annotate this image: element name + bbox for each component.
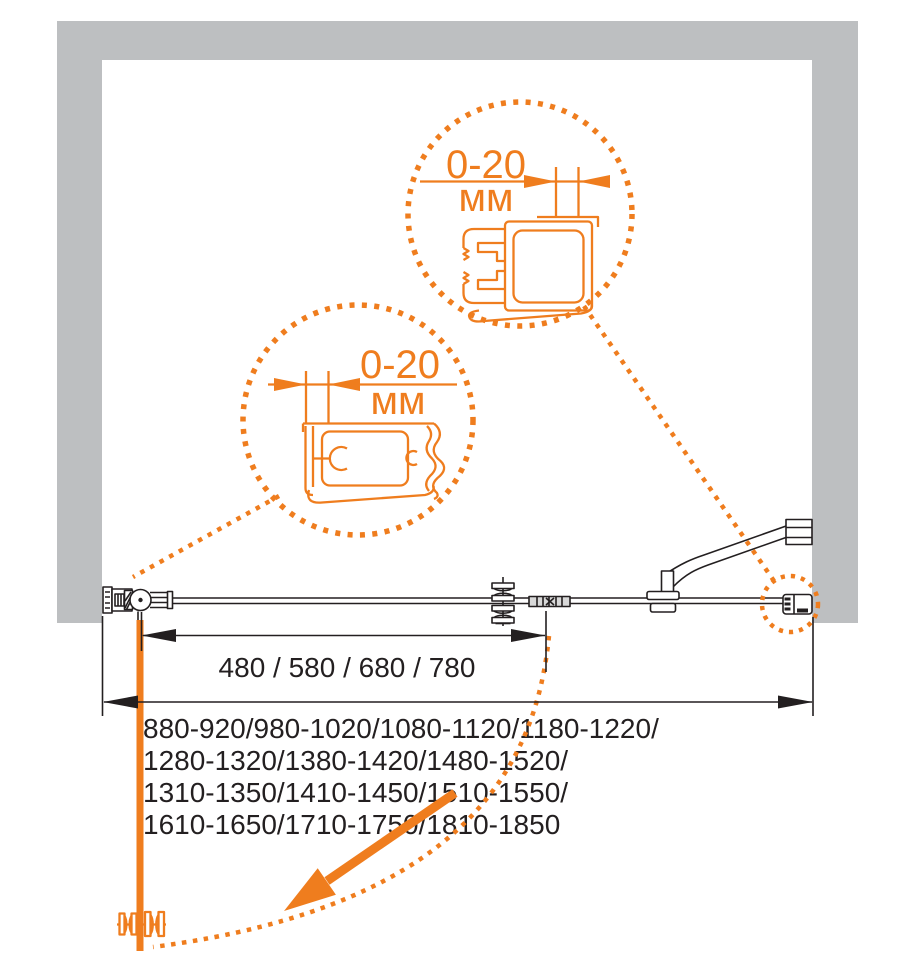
leader-line-bottom-detail [133,496,279,577]
door-leaf-line [172,598,783,604]
knob-handle-icon [492,577,514,626]
magnetic-latch-icon [529,597,570,607]
drawing-artwork: 0-20 мм 0-20 мм [0,0,921,976]
detail-circle-bottom: 0-20 мм [243,305,473,535]
swing-arc [153,636,549,947]
wall-profile-cross-section-icon [464,217,599,322]
door-width-dimension [142,611,547,672]
detail-circle-top: 0-20 мм [408,102,632,326]
wall-profile-icon [783,595,812,615]
wall-profile-cross-section-icon [303,424,444,503]
adjustment-profile-bar [137,620,144,951]
pivot-hinge-icon [103,587,173,622]
technical-drawing-page: 480 / 580 / 680 / 780 880-920/980-1020/1… [0,0,921,976]
leader-line-top-detail [584,306,818,632]
opening-width-dimension [103,616,814,716]
